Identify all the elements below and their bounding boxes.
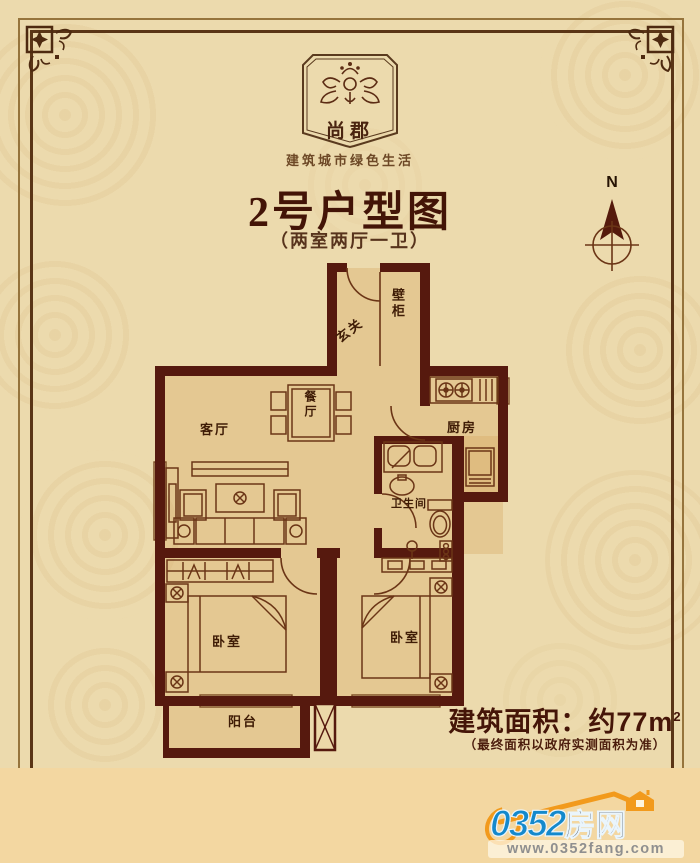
room-label-bathroom: 卫生间 xyxy=(391,495,427,511)
room-label-balcony: 阳台 xyxy=(228,711,258,730)
shaft-hatch xyxy=(315,704,335,750)
area-disclaimer: （最终面积以政府实测面积为准） xyxy=(435,734,695,753)
site-url: www.0352fang.com xyxy=(488,840,684,858)
floorplan-drawing xyxy=(0,0,700,768)
room-label-bedroom-right: 卧室 xyxy=(390,627,420,646)
north-arrow-icon xyxy=(585,199,639,271)
area-superscript: 2 xyxy=(673,709,681,724)
floorplan-poster: 尚郡 建筑城市绿色生活 2号户型图 （两室两厅一卫） N xyxy=(0,0,700,863)
decorated-sheet: 尚郡 建筑城市绿色生活 2号户型图 （两室两厅一卫） N xyxy=(0,0,700,768)
site-name: 房网 xyxy=(564,808,626,843)
site-logo-text: 0352房网 xyxy=(490,800,626,845)
room-label-dining: 餐厅 xyxy=(302,390,319,420)
site-watermark: 0352房网 www.0352fang.com xyxy=(486,786,698,862)
room-label-kitchen: 厨房 xyxy=(447,417,477,436)
room-label-bedroom-left: 卧室 xyxy=(212,631,242,650)
room-label-closet: 壁柜 xyxy=(388,288,407,320)
area-value: 建筑面积：约77m xyxy=(448,707,673,737)
room-label-living: 客厅 xyxy=(200,419,230,438)
site-number: 0352 xyxy=(490,803,564,844)
